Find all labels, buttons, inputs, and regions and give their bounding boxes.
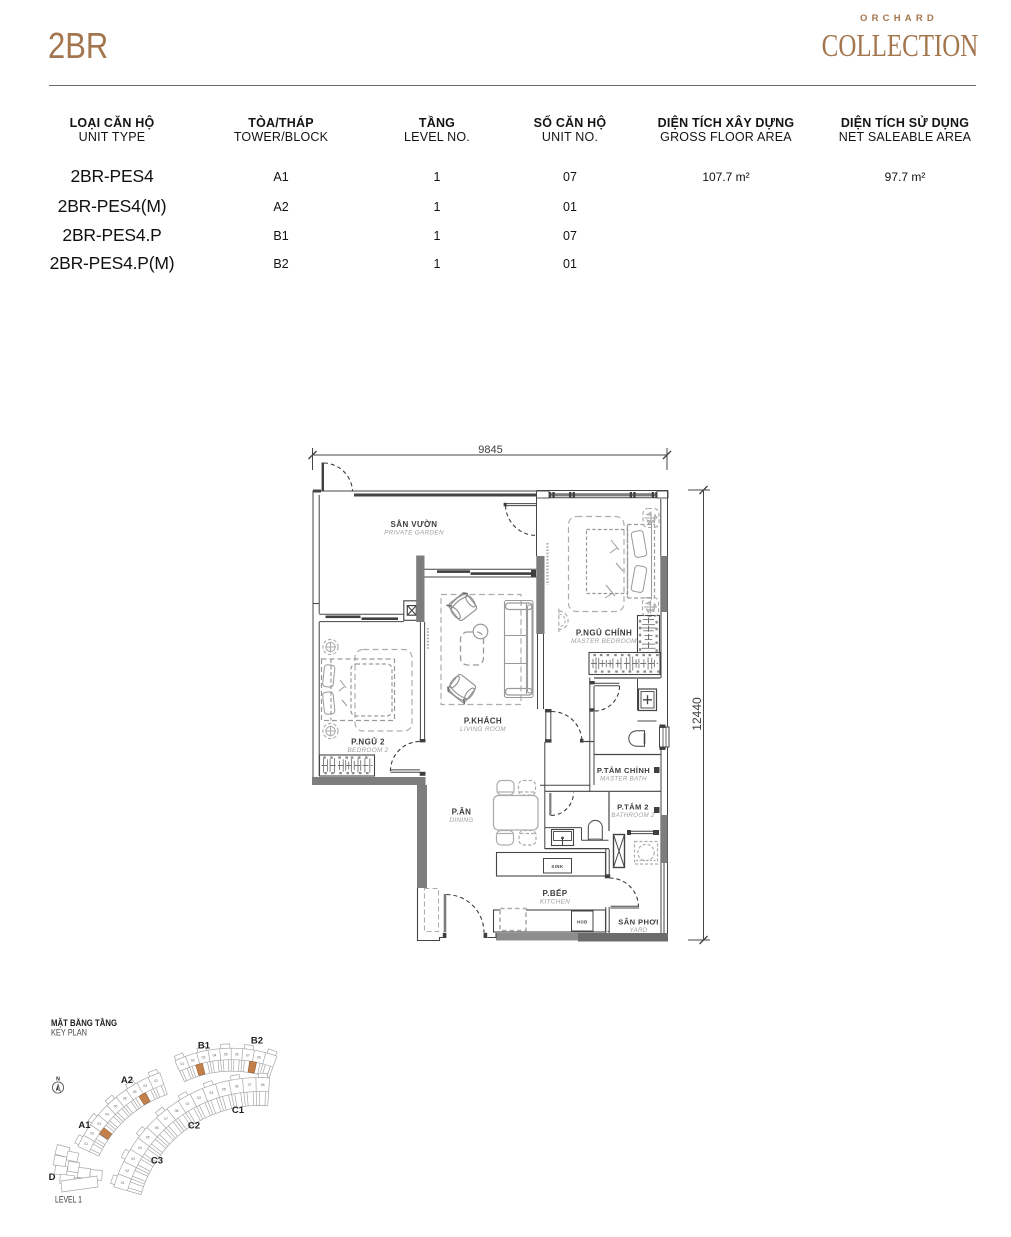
svg-text:06: 06 xyxy=(257,1055,261,1059)
svg-text:P.NGỦ CHÍNH: P.NGỦ CHÍNH xyxy=(576,629,632,638)
svg-text:05: 05 xyxy=(133,1090,137,1094)
svg-text:04: 04 xyxy=(105,1113,109,1117)
svg-text:BEDROOM 2: BEDROOM 2 xyxy=(347,747,388,754)
svg-text:02: 02 xyxy=(154,1079,158,1083)
svg-text:A1: A1 xyxy=(78,1120,91,1131)
svg-text:05: 05 xyxy=(146,1136,150,1140)
svg-text:SÂN VƯỜN: SÂN VƯỜN xyxy=(391,520,438,529)
svg-text:HOB: HOB xyxy=(577,920,587,925)
svg-text:KITCHEN: KITCHEN xyxy=(540,898,570,905)
svg-text:PRIVATE GARDEN: PRIVATE GARDEN xyxy=(384,529,444,536)
svg-text:C3: C3 xyxy=(151,1156,163,1167)
svg-text:SÂN PHƠI: SÂN PHƠI xyxy=(618,918,658,927)
svg-text:01: 01 xyxy=(84,1142,88,1146)
svg-text:03: 03 xyxy=(209,1091,213,1095)
svg-text:12440: 12440 xyxy=(690,697,704,731)
svg-text:DINING: DINING xyxy=(449,817,473,824)
svg-text:P.TẮM CHÍNH: P.TẮM CHÍNH xyxy=(597,766,650,775)
svg-text:MASTER BEDROOM: MASTER BEDROOM xyxy=(571,638,637,645)
svg-text:C2: C2 xyxy=(188,1121,200,1132)
svg-text:04: 04 xyxy=(138,1146,142,1150)
svg-text:P.ĂN: P.ĂN xyxy=(452,808,472,817)
svg-text:LIVING ROOM: LIVING ROOM xyxy=(460,726,506,733)
svg-text:02: 02 xyxy=(191,1058,195,1062)
svg-text:B1: B1 xyxy=(198,1041,211,1052)
svg-text:N: N xyxy=(56,1077,60,1083)
svg-text:MASTER BATH: MASTER BATH xyxy=(600,775,647,782)
svg-text:05: 05 xyxy=(224,1053,228,1057)
svg-text:P.KHÁCH: P.KHÁCH xyxy=(464,717,502,726)
svg-text:02: 02 xyxy=(90,1132,94,1136)
svg-text:07: 07 xyxy=(164,1117,168,1121)
svg-text:07: 07 xyxy=(246,1053,250,1057)
svg-text:03: 03 xyxy=(143,1084,147,1088)
svg-text:03: 03 xyxy=(131,1157,135,1161)
svg-text:03: 03 xyxy=(97,1122,101,1126)
svg-text:A2: A2 xyxy=(121,1075,133,1086)
svg-text:P.NGỦ 2: P.NGỦ 2 xyxy=(351,738,385,747)
svg-text:05: 05 xyxy=(222,1087,226,1091)
svg-text:05: 05 xyxy=(114,1104,118,1108)
svg-text:YARD: YARD xyxy=(629,927,647,934)
svg-text:02: 02 xyxy=(197,1096,201,1100)
svg-text:9845: 9845 xyxy=(478,444,502,456)
svg-text:D: D xyxy=(49,1172,56,1183)
svg-text:06: 06 xyxy=(235,1085,239,1089)
svg-text:02: 02 xyxy=(125,1169,129,1173)
svg-text:KEY PLAN: KEY PLAN xyxy=(51,1028,87,1039)
svg-text:BATHROOM 2: BATHROOM 2 xyxy=(611,812,655,819)
svg-text:06: 06 xyxy=(155,1126,159,1130)
svg-text:06: 06 xyxy=(235,1053,239,1057)
svg-text:LEVEL 1: LEVEL 1 xyxy=(55,1195,82,1205)
svg-text:07: 07 xyxy=(248,1083,252,1087)
svg-text:03: 03 xyxy=(202,1055,206,1059)
svg-text:01: 01 xyxy=(121,1181,125,1185)
svg-text:08: 08 xyxy=(261,1083,265,1087)
svg-text:P.TẮM 2: P.TẮM 2 xyxy=(617,803,649,812)
svg-text:C1: C1 xyxy=(232,1105,245,1116)
svg-text:04: 04 xyxy=(213,1054,217,1058)
svg-text:01: 01 xyxy=(180,1062,184,1066)
svg-text:B2: B2 xyxy=(251,1036,263,1047)
svg-text:01: 01 xyxy=(186,1102,190,1106)
svg-text:SINK: SINK xyxy=(551,864,564,869)
svg-text:08: 08 xyxy=(175,1109,179,1113)
svg-text:06: 06 xyxy=(123,1097,127,1101)
svg-text:P.BẾP: P.BẾP xyxy=(543,888,568,898)
